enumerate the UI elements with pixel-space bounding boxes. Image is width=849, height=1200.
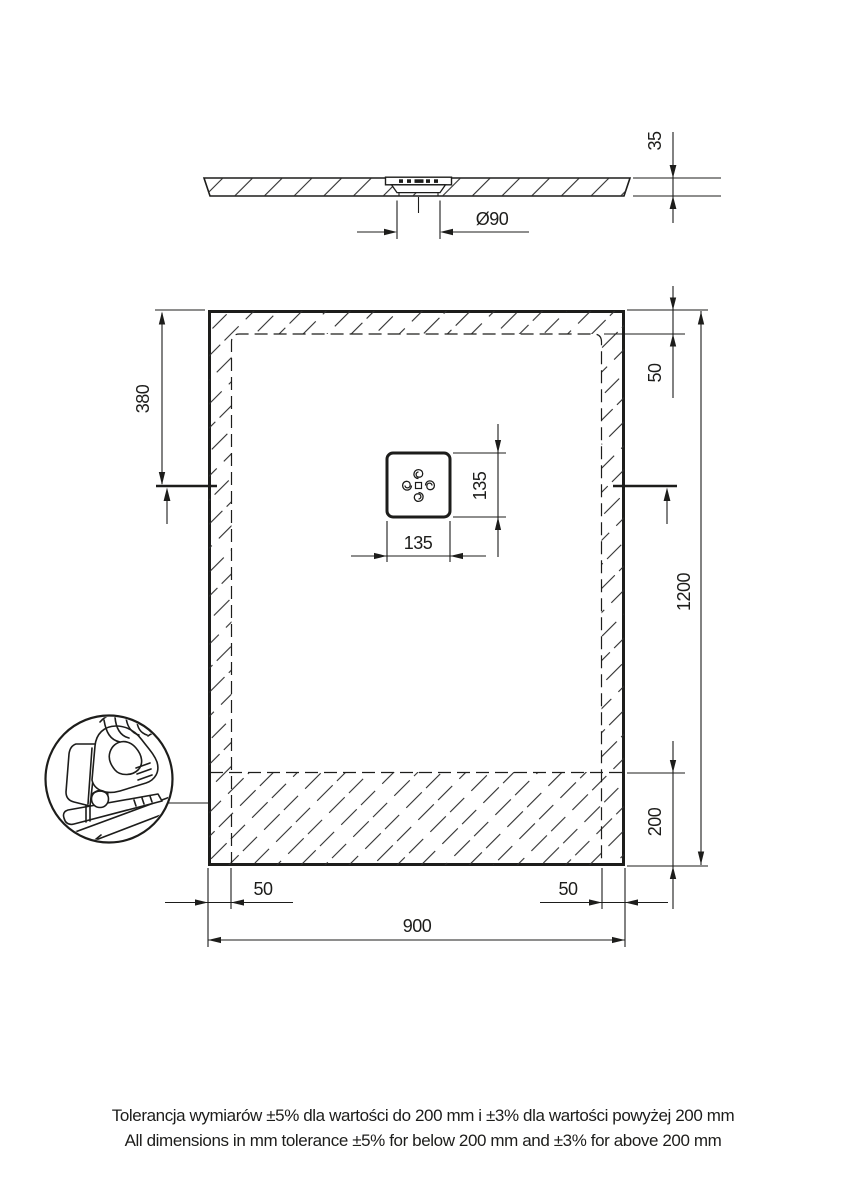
dim-overall-width: 900 — [208, 916, 625, 943]
dim-thickness: 35 — [633, 131, 721, 223]
plan-view: 380 50 1200 200 — [133, 286, 708, 947]
dim-label-overall-width: 900 — [403, 916, 432, 936]
dim-label-side-margin: 50 — [645, 363, 665, 383]
dim-drain-diameter: Ø90 — [357, 201, 529, 240]
dim-drain-offset: 380 — [133, 310, 205, 485]
dim-label-bottom-zone: 200 — [645, 807, 665, 836]
dim-bottom-margin-right: 50 — [540, 879, 668, 906]
tolerance-note-pl: Tolerancja wymiarów ±5% dla wartości do … — [112, 1106, 735, 1125]
shower-tray-technical-drawing: 35 Ø90 — [0, 0, 849, 1200]
side-view: 35 Ø90 — [204, 131, 721, 239]
dim-overall-length: 1200 — [627, 311, 708, 866]
dim-label-bottom-margin-left: 50 — [253, 879, 273, 899]
dim-bottom-margin-left: 50 — [165, 879, 293, 906]
tolerance-note-en: All dimensions in mm tolerance ±5% for b… — [125, 1131, 722, 1150]
dim-label-overall-length: 1200 — [674, 572, 694, 611]
dim-label-thickness: 35 — [645, 131, 665, 151]
technical-drawing-canvas: 35 Ø90 — [0, 0, 849, 1200]
detail-callout — [46, 712, 209, 862]
drain-centerline-left — [156, 486, 217, 524]
tolerance-notes: Tolerancja wymiarów ±5% dla wartości do … — [112, 1106, 735, 1150]
dim-label-drain-width: 135 — [404, 533, 433, 553]
drain-square — [387, 453, 450, 517]
dim-label-drain-offset: 380 — [133, 384, 153, 413]
dim-label-drain-height: 135 — [470, 471, 490, 500]
dim-label-drain-diameter: Ø90 — [476, 209, 509, 229]
dim-label-bottom-margin-right: 50 — [558, 879, 578, 899]
dim-bottom-zone: 200 — [627, 741, 685, 909]
